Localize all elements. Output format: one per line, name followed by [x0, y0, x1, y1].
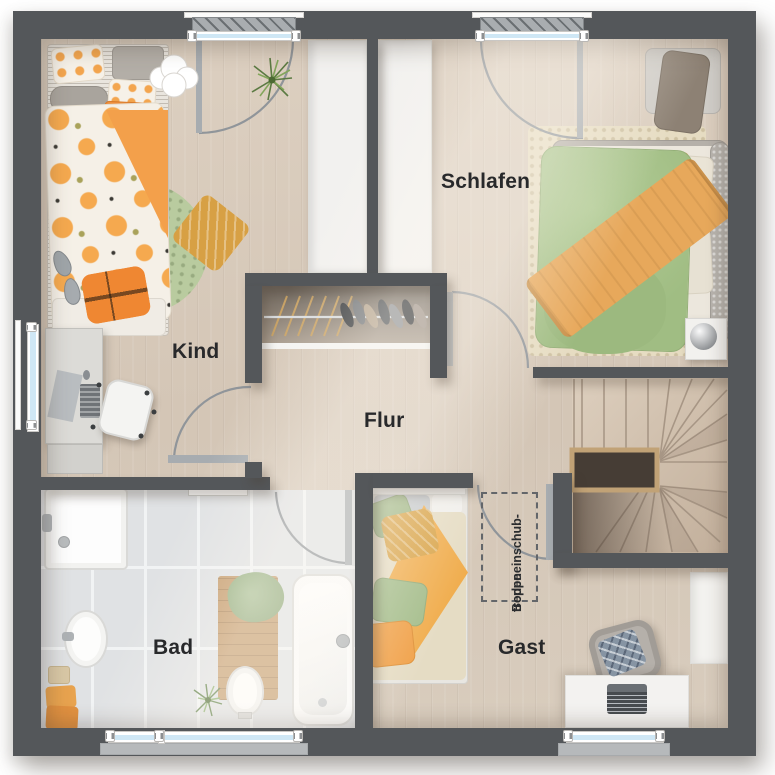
window-tag — [26, 420, 37, 430]
room-label-schlafen: Schlafen — [441, 170, 530, 194]
window-tag — [187, 30, 197, 42]
window-tag — [105, 730, 115, 742]
room-label-bad: Bad — [153, 636, 193, 660]
window-tag — [655, 730, 665, 742]
window-glass — [570, 735, 660, 740]
window-glass — [194, 34, 294, 38]
window-glass — [482, 34, 582, 38]
window-tag — [291, 30, 301, 42]
room-label-kind: Kind — [172, 340, 219, 364]
window-tag — [26, 322, 37, 332]
window-glass — [112, 735, 296, 740]
room-label-flur: Flur — [364, 409, 404, 433]
window-tag — [579, 30, 589, 42]
window-sill — [558, 743, 670, 756]
window-tag — [475, 30, 485, 42]
attic-hatch-annotation: Bodeneinschub- treppe — [481, 492, 538, 602]
floor-plan: Kind Schlafen Flur Bad Gast Bodeneinschu… — [0, 0, 775, 775]
window-tag — [293, 730, 303, 742]
window-tag — [154, 730, 164, 742]
window-tag — [563, 730, 573, 742]
window-glass — [30, 328, 36, 428]
window-sill — [100, 743, 308, 755]
window-sill — [15, 320, 21, 430]
room-label-gast: Gast — [498, 636, 546, 660]
exterior-wall — [13, 11, 756, 756]
